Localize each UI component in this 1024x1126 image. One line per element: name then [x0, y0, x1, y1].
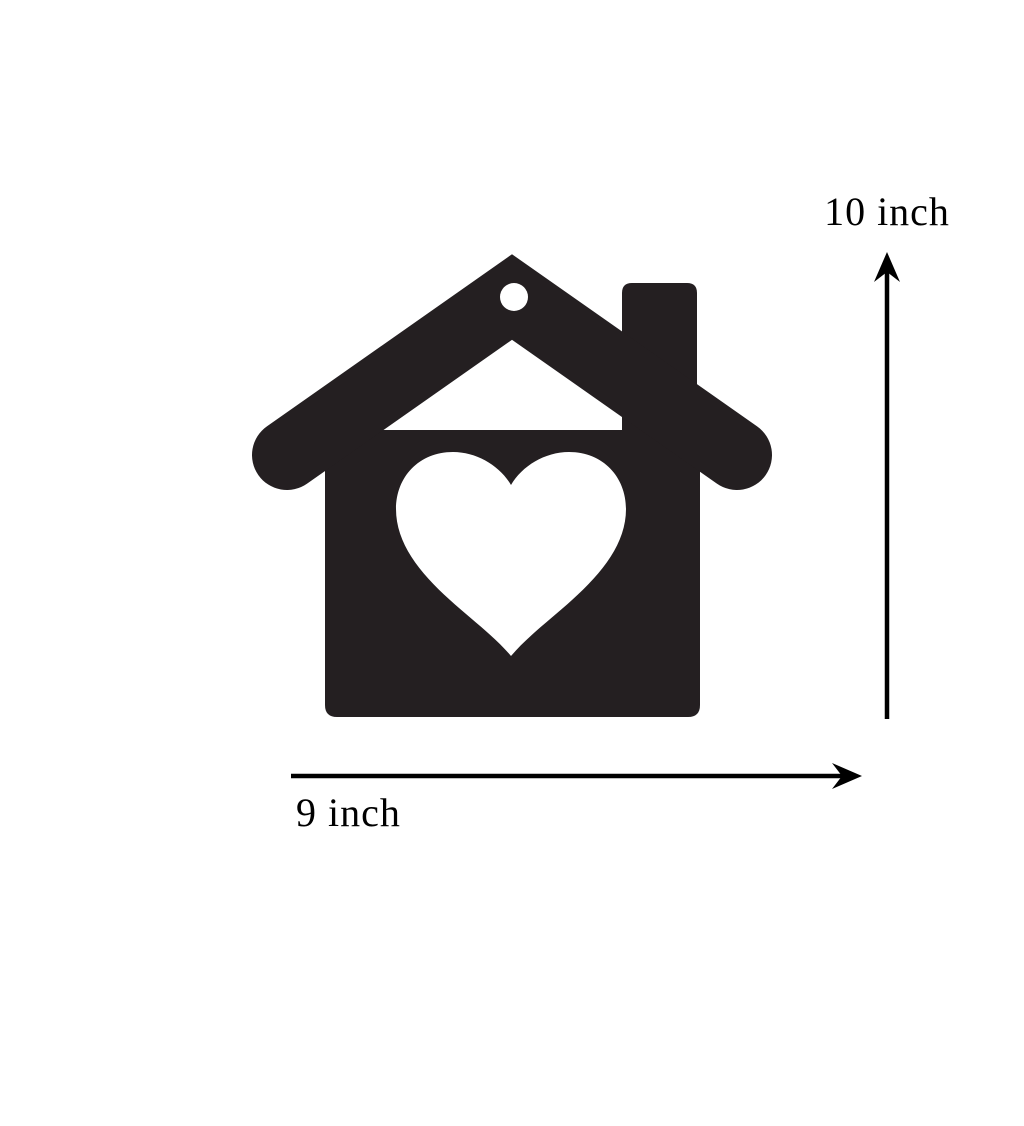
house-heart-ornament-icon [287, 283, 737, 717]
width-dimension-arrow [291, 763, 862, 789]
height-dimension-label: 10 inch [824, 192, 950, 232]
diagram-canvas: 10 inch 9 inch [0, 0, 1024, 1126]
height-dimension-arrow [874, 252, 900, 719]
width-dimension-label: 9 inch [296, 793, 401, 833]
hanging-hole-cutout [500, 283, 528, 311]
dimension-diagram [0, 0, 1024, 1126]
